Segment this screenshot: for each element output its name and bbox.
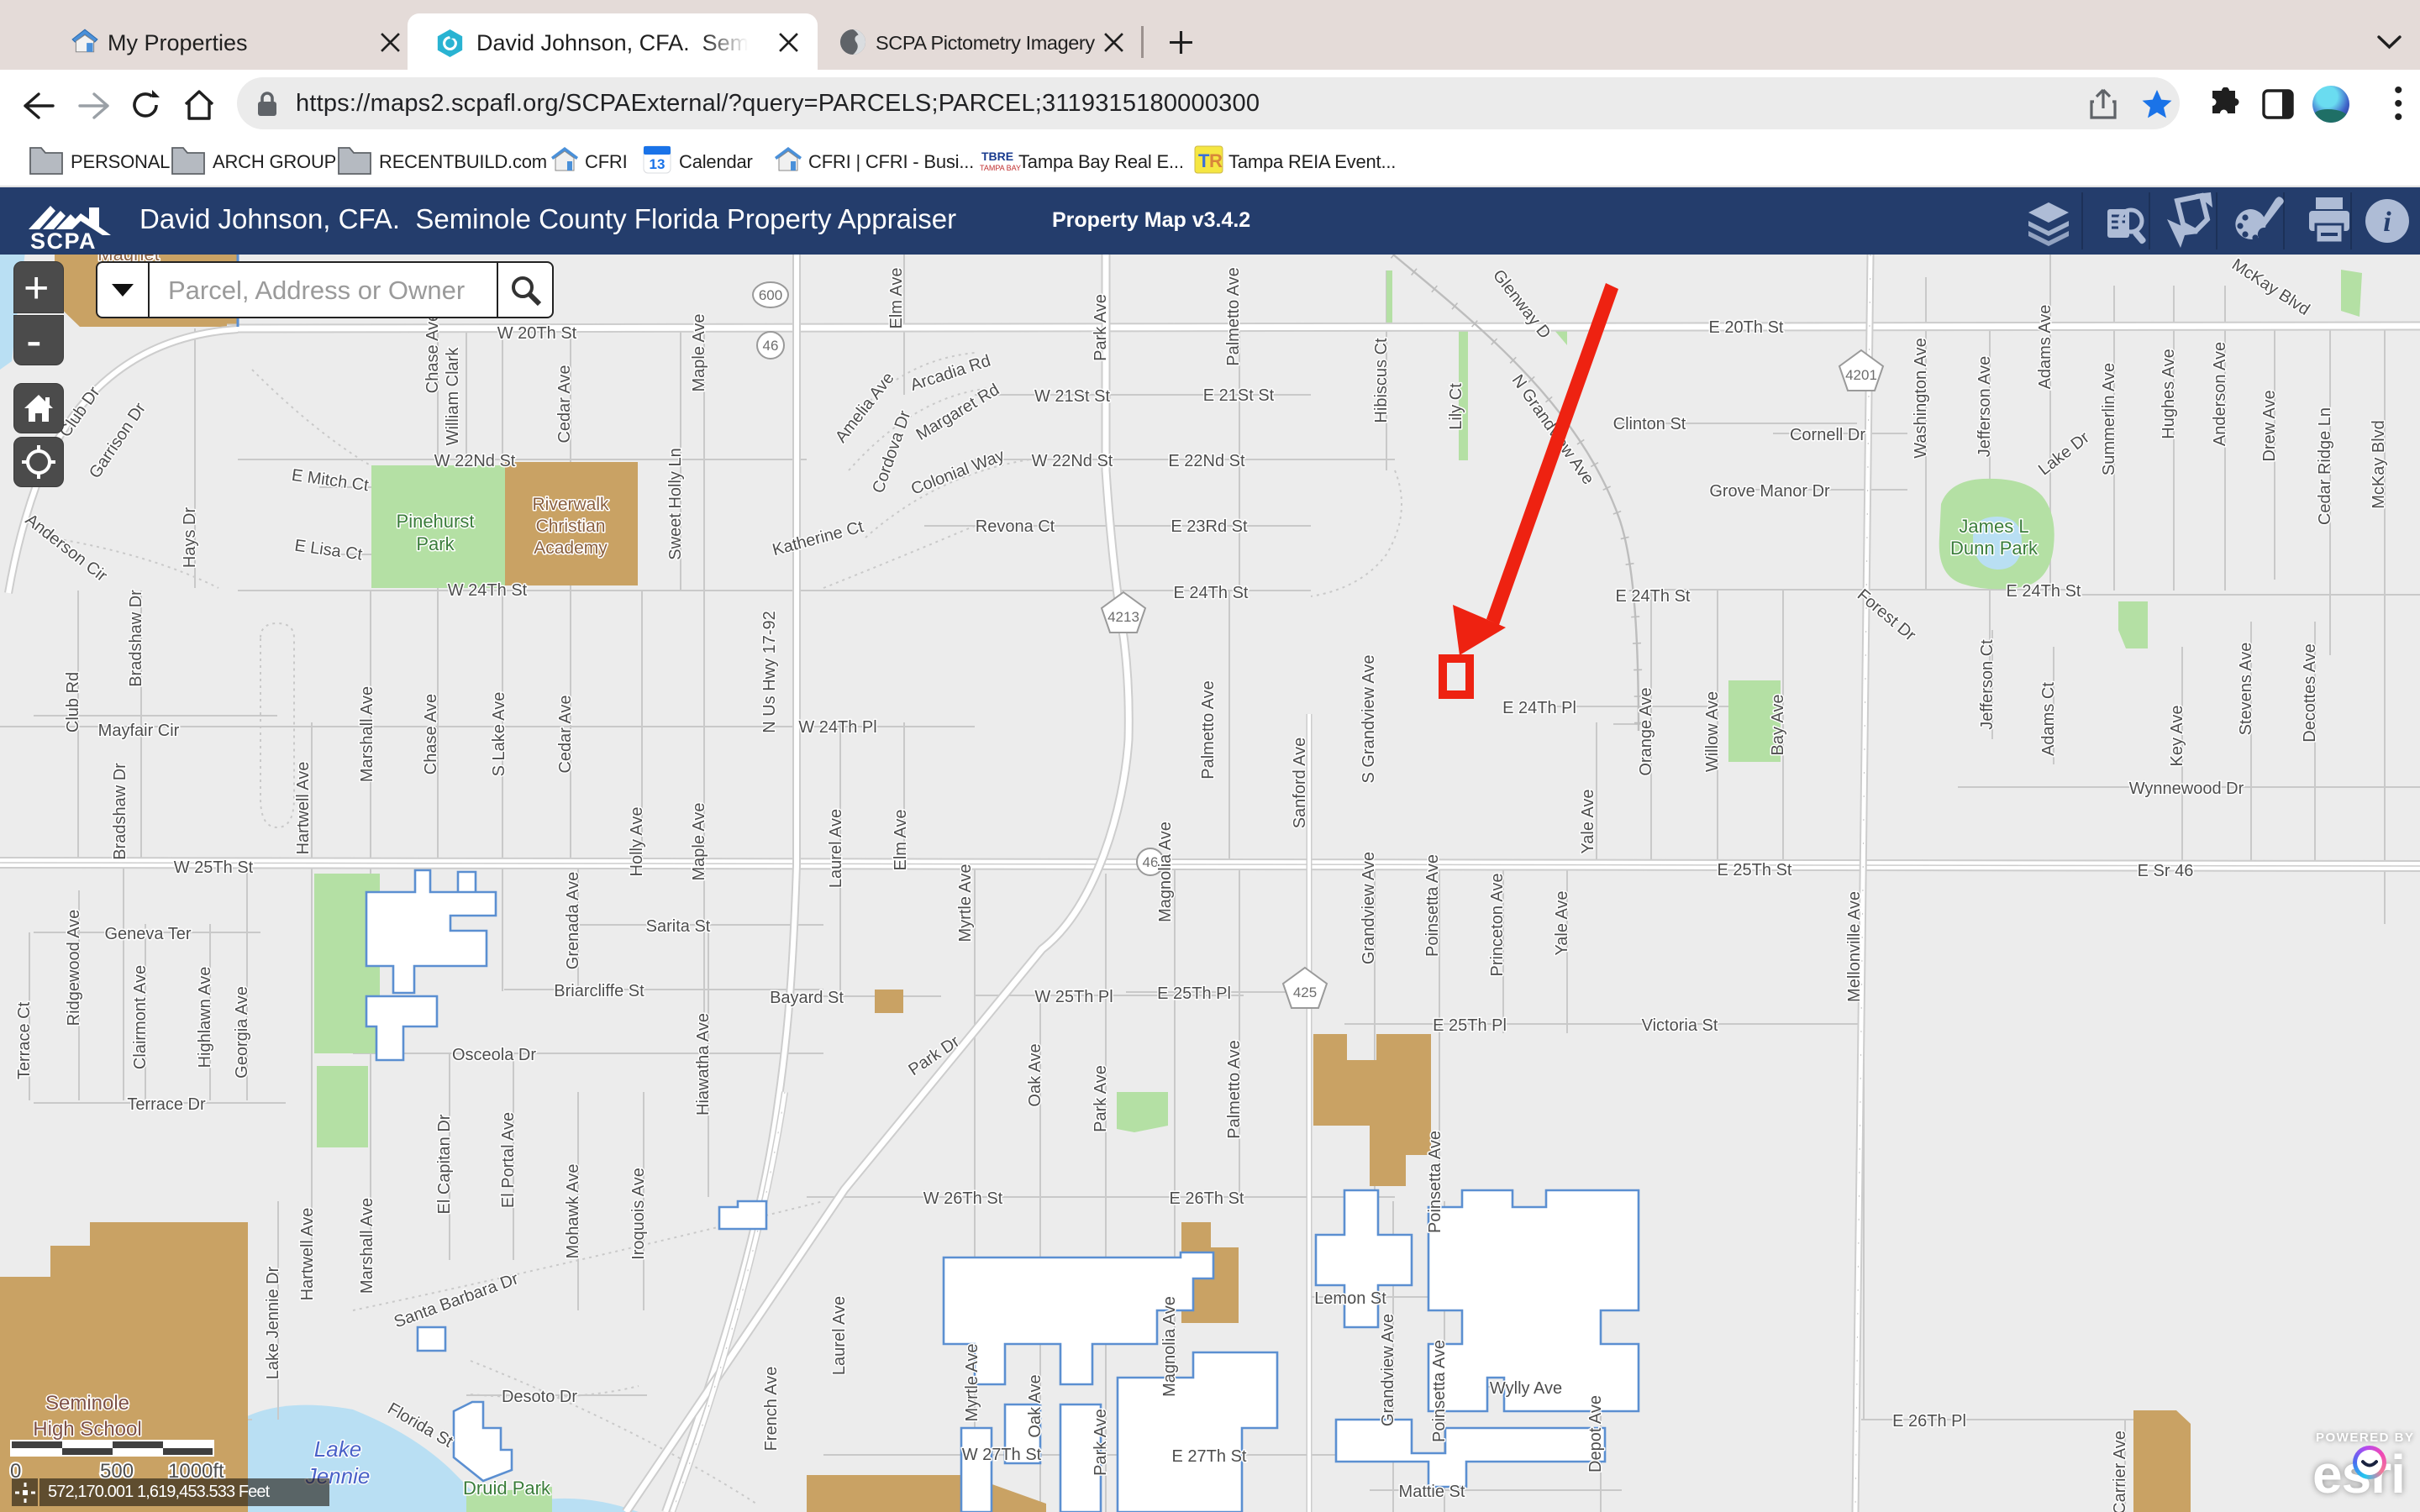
svg-text:Anderson Ave: Anderson Ave	[2211, 342, 2229, 446]
svg-text:Park Ave: Park Ave	[1092, 1409, 1110, 1476]
svg-text:Osceola Dr: Osceola Dr	[452, 1046, 536, 1064]
svg-text:W 24Th Pl: W 24Th Pl	[798, 718, 876, 737]
svg-text:Riverwalk: Riverwalk	[532, 495, 609, 514]
svg-text:CFRI | CFRI - Busi...: CFRI | CFRI - Busi...	[808, 151, 974, 172]
svg-text:Cedar Ave: Cedar Ave	[555, 365, 574, 443]
svg-text:W 25Th Pl: W 25Th Pl	[1034, 988, 1113, 1006]
svg-text:McKay Blvd: McKay Blvd	[2370, 420, 2388, 509]
svg-text:Highlawn Ave: Highlawn Ave	[196, 967, 214, 1068]
svg-text:Grenada Ave: Grenada Ave	[564, 872, 582, 969]
svg-text:Park: Park	[416, 533, 455, 554]
svg-text:Jefferson Ave: Jefferson Ave	[1975, 356, 1994, 457]
svg-text:Terrace Ct: Terrace Ct	[15, 1001, 34, 1079]
svg-text:Mohawk Ave: Mohawk Ave	[564, 1163, 582, 1258]
svg-text:Adams Ave: Adams Ave	[2036, 305, 2054, 390]
svg-text:Stevens Ave: Stevens Ave	[2237, 643, 2255, 736]
svg-text:Carrier Ave: Carrier Ave	[2111, 1431, 2129, 1512]
svg-text:E 24Th Pl: E 24Th Pl	[1502, 699, 1576, 717]
svg-text:William Clark: William Clark	[444, 347, 462, 446]
svg-text:Clinton St: Clinton St	[1613, 415, 1686, 433]
svg-text:Willow Ave: Willow Ave	[1703, 691, 1722, 772]
svg-text:Cedar Ridge Ln: Cedar Ridge Ln	[2316, 407, 2334, 525]
svg-text:Decottes Ave: Decottes Ave	[2301, 643, 2319, 742]
svg-text:Chase Ave: Chase Ave	[422, 694, 440, 774]
svg-text:Maple Ave: Maple Ave	[690, 802, 708, 880]
svg-text:Dunn Park: Dunn Park	[1950, 538, 2039, 559]
svg-text:Poinsetta Ave: Poinsetta Ave	[1426, 1131, 1444, 1233]
svg-text:W 24Th St: W 24Th St	[448, 581, 528, 600]
svg-text:Clairmont Ave: Clairmont Ave	[131, 965, 150, 1069]
svg-text:Pinehurst: Pinehurst	[397, 511, 475, 532]
svg-text:Maple Ave: Maple Ave	[690, 313, 708, 391]
svg-text:Bay Ave: Bay Ave	[1769, 694, 1787, 755]
svg-text:Academy: Academy	[534, 538, 608, 558]
svg-text:Princeton Ave: Princeton Ave	[1488, 873, 1507, 976]
svg-text:TAMPA BAY: TAMPA BAY	[980, 164, 1021, 172]
svg-text:E 24Th St: E 24Th St	[1616, 587, 1691, 606]
svg-text:Magnolia Ave: Magnolia Ave	[1156, 822, 1175, 922]
svg-text:Hibiscus Ct: Hibiscus Ct	[1372, 338, 1391, 423]
svg-text:E 21St St: E 21St St	[1203, 386, 1275, 405]
svg-text:Ridgewood Ave: Ridgewood Ave	[65, 910, 83, 1026]
svg-text:Magnolia Ave: Magnolia Ave	[1160, 1296, 1179, 1397]
svg-text:Iroquois Ave: Iroquois Ave	[629, 1168, 648, 1260]
svg-text:W 21St St: W 21St St	[1034, 387, 1110, 406]
svg-text:4201: 4201	[1845, 367, 1877, 383]
svg-text:SCPA: SCPA	[30, 228, 97, 249]
svg-text:High School: High School	[33, 1418, 141, 1441]
svg-text:Palmetto Ave: Palmetto Ave	[1224, 267, 1243, 365]
svg-text:Laurel Ave: Laurel Ave	[827, 809, 845, 888]
svg-text:S Lake Ave: S Lake Ave	[490, 692, 508, 777]
svg-text:Poinsetta Ave: Poinsetta Ave	[1430, 1340, 1449, 1442]
svg-text:Tampa REIA Event...: Tampa REIA Event...	[1228, 151, 1396, 172]
svg-text:W 25Th St: W 25Th St	[174, 858, 254, 877]
svg-text:N Us Hwy 17-92: N Us Hwy 17-92	[760, 611, 779, 733]
svg-text:E 24Th St: E 24Th St	[1174, 584, 1249, 602]
svg-text:Marshall Ave: Marshall Ave	[358, 686, 376, 782]
svg-text:E 22Nd St: E 22Nd St	[1168, 452, 1245, 470]
svg-text:French Ave: French Ave	[762, 1367, 781, 1452]
svg-text:Key Ave: Key Ave	[2168, 705, 2186, 766]
svg-text:Hays Dr: Hays Dr	[181, 507, 199, 569]
svg-text:Park Ave: Park Ave	[1092, 1065, 1110, 1132]
svg-text:Druid Park: Druid Park	[463, 1478, 551, 1499]
svg-text:Club Rd: Club Rd	[64, 672, 82, 732]
svg-text:PERSONAL: PERSONAL	[71, 151, 170, 172]
svg-text:Hartwell Ave: Hartwell Ave	[294, 762, 313, 855]
svg-text:Drew Ave: Drew Ave	[2260, 390, 2279, 461]
svg-text:Hughes Ave: Hughes Ave	[2160, 349, 2178, 439]
svg-text:Holly Ave: Holly Ave	[628, 806, 646, 876]
svg-text:W 27Th St: W 27Th St	[962, 1446, 1042, 1464]
svg-text:600: 600	[759, 287, 782, 303]
svg-text:Mayfair Cir: Mayfair Cir	[98, 722, 180, 740]
svg-text:Lake Jennie Dr: Lake Jennie Dr	[264, 1266, 282, 1379]
svg-text:Palmetto Ave: Palmetto Ave	[1225, 1040, 1244, 1138]
svg-text:4213: 4213	[1107, 609, 1139, 625]
svg-text:Washington Ave: Washington Ave	[1912, 338, 1930, 458]
svg-text:Elm Ave: Elm Ave	[887, 268, 906, 329]
svg-text:Bayard St: Bayard St	[770, 989, 844, 1007]
svg-text:S Grandview Ave: S Grandview Ave	[1360, 654, 1378, 783]
svg-text:Oak Ave: Oak Ave	[1026, 1043, 1044, 1106]
svg-text:Cedar Ave: Cedar Ave	[556, 695, 575, 773]
svg-text:Lemon St: Lemon St	[1314, 1289, 1386, 1308]
svg-text:Yale Ave: Yale Ave	[1579, 789, 1597, 853]
svg-text:T: T	[1198, 150, 1210, 171]
svg-text:James L: James L	[1959, 516, 2028, 537]
svg-text:Summerlin Ave: Summerlin Ave	[2100, 363, 2118, 475]
svg-text:Mellonville Ave: Mellonville Ave	[1845, 891, 1864, 1002]
svg-text:El Portal Ave: El Portal Ave	[499, 1112, 518, 1208]
svg-text:Briarcliffe St: Briarcliffe St	[554, 982, 644, 1000]
svg-text:Victoria St: Victoria St	[1642, 1016, 1718, 1035]
svg-text:Bradshaw Dr: Bradshaw Dr	[127, 590, 145, 687]
svg-text:Myrtle Ave: Myrtle Ave	[963, 1344, 981, 1422]
svg-text:Hiawatha Ave: Hiawatha Ave	[694, 1013, 713, 1116]
svg-text:E 23Rd St: E 23Rd St	[1171, 517, 1248, 536]
svg-text:Elm Ave: Elm Ave	[892, 810, 910, 871]
svg-text:E 24Th St: E 24Th St	[2007, 582, 2081, 601]
svg-text:Oak Ave: Oak Ave	[1026, 1374, 1044, 1437]
svg-text:Adams Ct: Adams Ct	[2039, 682, 2058, 756]
svg-text:W 22Nd St: W 22Nd St	[1032, 452, 1113, 470]
svg-text:Yale Ave: Yale Ave	[1553, 890, 1571, 955]
svg-text:Lake: Lake	[314, 1436, 361, 1462]
svg-text:E 25Th Pl: E 25Th Pl	[1157, 984, 1231, 1003]
svg-text:Sweet Holly Ln: Sweet Holly Ln	[666, 448, 685, 559]
svg-text:Christian: Christian	[536, 517, 606, 536]
svg-text:Chase Ave: Chase Ave	[423, 312, 442, 393]
svg-text:Grove Manor Dr: Grove Manor Dr	[1709, 482, 1830, 501]
svg-text:Seminole: Seminole	[45, 1392, 129, 1415]
svg-text:El Capitan Dr: El Capitan Dr	[435, 1114, 454, 1214]
svg-text:E Sr 46: E Sr 46	[2138, 862, 2194, 880]
svg-text:Laurel Ave: Laurel Ave	[830, 1296, 849, 1375]
svg-text:Tampa Bay Real E...: Tampa Bay Real E...	[1018, 151, 1184, 172]
svg-text:Geneva Ter: Geneva Ter	[104, 925, 191, 943]
svg-text:Sarita St: Sarita St	[646, 917, 711, 936]
svg-text:E 25Th St: E 25Th St	[1718, 861, 1792, 879]
svg-text:CFRI: CFRI	[585, 151, 628, 172]
svg-text:13: 13	[650, 156, 665, 172]
svg-text:Poinsetta Ave: Poinsetta Ave	[1423, 854, 1442, 957]
svg-text:Depot Ave: Depot Ave	[1586, 1395, 1605, 1473]
svg-text:Jefferson Ct: Jefferson Ct	[1978, 639, 1996, 730]
svg-text:46: 46	[763, 338, 779, 354]
svg-text:Marshall Ave: Marshall Ave	[358, 1198, 376, 1294]
svg-text:W 22Nd St: W 22Nd St	[434, 452, 516, 470]
svg-text:E 27Th St: E 27Th St	[1172, 1447, 1247, 1466]
svg-text:i: i	[2383, 207, 2391, 238]
svg-text:Palmetto Ave: Palmetto Ave	[1199, 680, 1218, 779]
svg-text:E 26Th St: E 26Th St	[1170, 1189, 1244, 1208]
svg-text:Revona Ct: Revona Ct	[976, 517, 1055, 536]
svg-text:Lily Ct: Lily Ct	[1447, 383, 1465, 430]
svg-text:425: 425	[1293, 984, 1317, 1000]
svg-text:Hartwell Ave: Hartwell Ave	[298, 1208, 317, 1301]
svg-text:Desoto Dr: Desoto Dr	[502, 1388, 577, 1406]
svg-text:Wynnewood Dr: Wynnewood Dr	[2129, 780, 2244, 798]
svg-text:Grandview Ave: Grandview Ave	[1360, 852, 1378, 964]
svg-text:Bradshaw Dr: Bradshaw Dr	[111, 763, 129, 860]
svg-text:Myrtle Ave: Myrtle Ave	[956, 864, 975, 942]
svg-text:Mattie St: Mattie St	[1399, 1483, 1465, 1501]
svg-text:Park Ave: Park Ave	[1092, 294, 1110, 361]
svg-text:RECENTBUILD.com: RECENTBUILD.com	[379, 151, 547, 172]
svg-text:E 26Th Pl: E 26Th Pl	[1892, 1412, 1966, 1431]
svg-text:Cornell Dr: Cornell Dr	[1790, 426, 1865, 444]
svg-text:Calendar: Calendar	[679, 151, 753, 172]
svg-text:E 25Th Pl: E 25Th Pl	[1433, 1016, 1507, 1035]
svg-text:E 20Th St: E 20Th St	[1709, 318, 1784, 337]
svg-text:W 26Th St: W 26Th St	[923, 1189, 1003, 1208]
svg-text:R: R	[1209, 150, 1223, 171]
svg-text:W 20Th St: W 20Th St	[497, 324, 577, 343]
svg-text:ARCH GROUP: ARCH GROUP	[213, 151, 336, 172]
svg-text:Wylly Ave: Wylly Ave	[1490, 1379, 1562, 1398]
svg-text:Georgia Ave: Georgia Ave	[233, 986, 251, 1079]
svg-text:Orange Ave: Orange Ave	[1637, 687, 1655, 775]
svg-text:TBRE: TBRE	[981, 150, 1013, 163]
svg-text:Grandview Ave: Grandview Ave	[1379, 1314, 1397, 1426]
svg-text:Terrace Dr: Terrace Dr	[127, 1095, 206, 1114]
svg-text:Sanford Ave: Sanford Ave	[1291, 738, 1309, 829]
